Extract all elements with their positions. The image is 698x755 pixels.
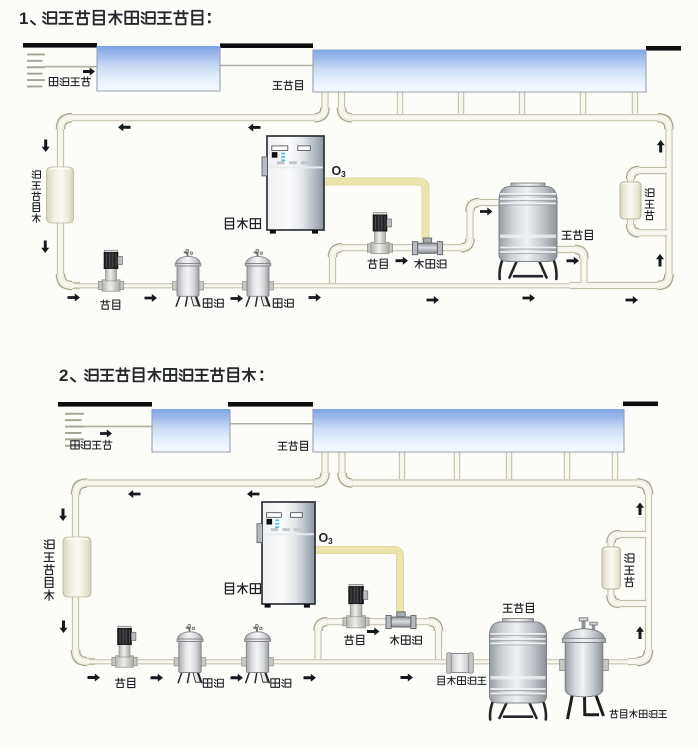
svg-text:3: 3 [328,536,333,546]
svg-text:1: 1 [19,9,28,28]
svg-text:2: 2 [59,366,68,385]
svg-text:3: 3 [341,169,346,179]
svg-text:O: O [332,164,342,178]
svg-text:O: O [319,531,329,545]
